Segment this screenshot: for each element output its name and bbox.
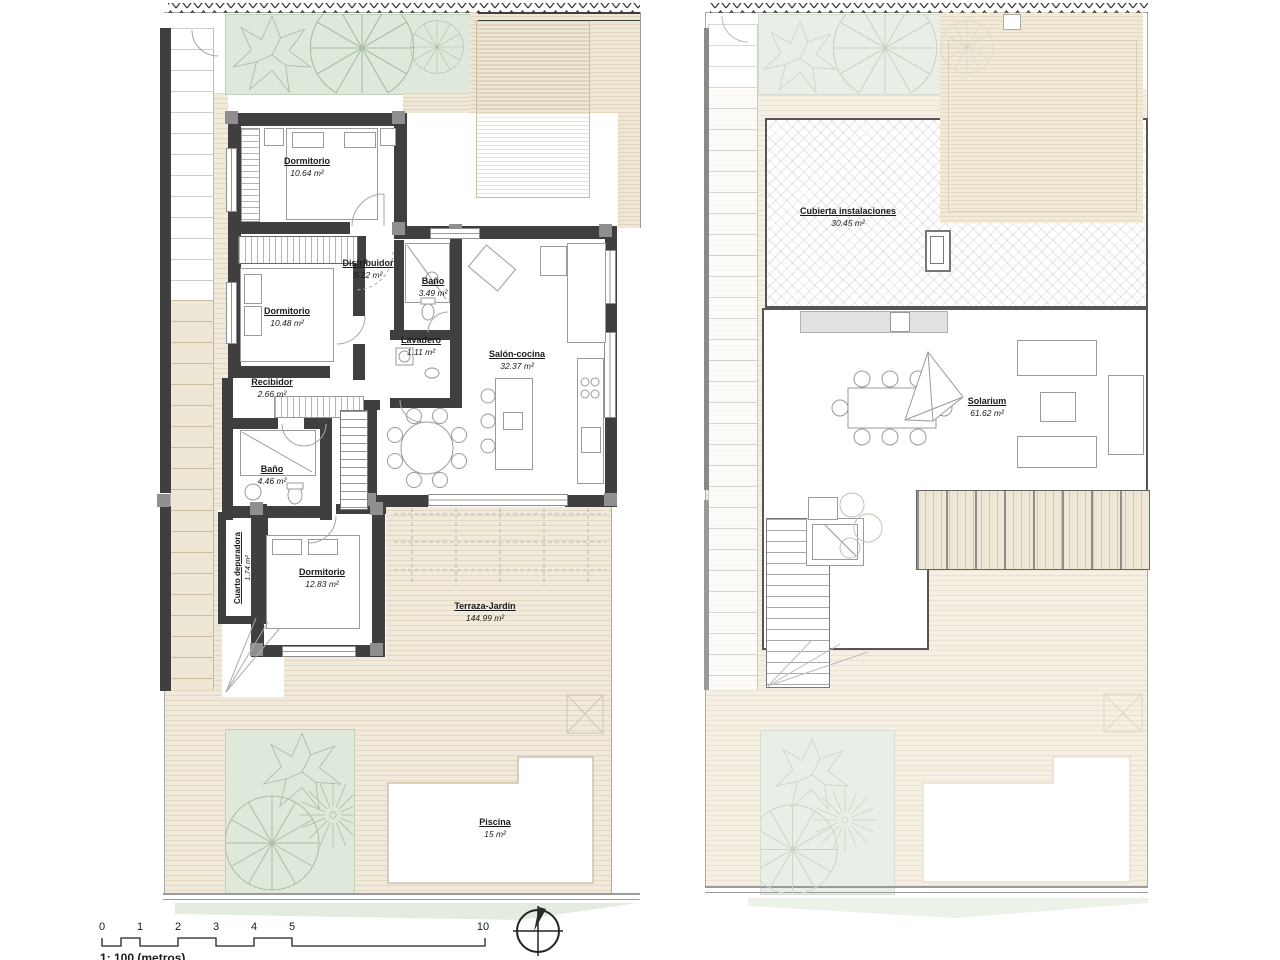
floor-plan-sheet: Dormitorio 10.64 m² Distribuidor 5.22 m²… [0,0,1280,960]
wall-pad [392,222,405,235]
window-sliding-door [430,228,480,239]
room-label-terraza-jardin: Terraza-Jardín 144.99 m² [454,601,515,624]
room-label-cubierta: Cubierta instalaciones 30.45 m² [800,206,896,229]
nightstand [264,128,284,146]
room-area: 10.48 m² [264,318,310,329]
wall-pad [250,502,263,515]
window [282,646,356,657]
room-area: 3.49 m² [419,288,448,299]
room-label-bano1: Baño 3.49 m² [419,276,448,299]
verge-sliver-right [748,898,1148,918]
street-separator [705,886,1148,893]
ottoman [540,246,567,276]
wall-segment [394,226,617,239]
room-area: 1.11 m² [401,347,441,358]
window [604,332,616,418]
sofa [1017,340,1097,376]
scale-tick: 1 [137,921,143,933]
wall-segment [372,504,385,657]
wall-pad [392,111,405,124]
front-garden [225,14,472,95]
window-sliding-door [428,494,568,506]
room-area: 32.37 m² [489,361,545,372]
wall-segment [450,226,462,408]
room-name: Lavadero [401,335,441,347]
built-in-closet [238,236,358,264]
north-arrow-icon [513,906,563,956]
roof-access-marker [1003,14,1021,30]
room-area: 15 m² [479,829,511,840]
scale-tick: 0 [99,921,105,933]
room-area: 2.66 m² [251,389,293,400]
wall-segment [222,506,332,518]
plot-wall-left-upper [160,28,171,493]
room-area: 10.64 m² [284,168,330,179]
room-area: 61.62 m² [968,408,1007,419]
roof-deck-inner [948,40,1137,212]
scale-tick: 3 [213,921,219,933]
back-garden-faded [760,730,895,895]
sofa [1108,375,1144,455]
door-opening [350,222,384,235]
verge-sliver-left [175,903,638,920]
room-label-dormitorio1: Dormitorio 10.64 m² [284,156,330,179]
skylight [925,230,951,272]
kitchen-counter [577,358,604,484]
skylight-inner [930,236,944,264]
pergola-slats [916,490,1150,570]
door-opening [278,418,304,429]
wall-segment [228,222,366,234]
outdoor-kitchen-counter [800,311,948,333]
planter-box [808,497,838,520]
room-name: Dormitorio [299,567,345,579]
room-label-solarium: Solarium 61.62 m² [968,396,1007,419]
room-label-salon-cocina: Salón-cocina 32.37 m² [489,349,545,372]
solarium-room [762,308,1148,504]
side-walkway-lower [170,300,214,690]
room-name: Piscina [479,817,511,829]
room-label-cuarto-depuradora: Cuarto depuradora 1.74 m² [233,532,253,604]
room-name: Distribuidor [343,258,394,270]
room-name: Dormitorio [284,156,330,168]
wall-pad [370,643,383,656]
wall-pad [599,224,612,237]
room-name: Recibidor [251,377,293,389]
room-label-distribuidor: Distribuidor 5.22 m² [343,258,394,281]
room-name: Terraza-Jardín [454,601,515,613]
room-name: Cubierta instalaciones [800,206,896,218]
sofa [567,243,606,343]
pillow [244,306,262,336]
coffee-table [1040,392,1076,422]
scale-bar-line [102,938,485,946]
room-name: Solarium [968,396,1007,408]
pillow [244,274,262,304]
window [226,148,237,212]
room-name: Dormitorio [264,306,310,318]
window [226,282,237,344]
wall-segment [390,398,452,408]
pillow [272,539,302,555]
island-sink [503,412,523,430]
room-area: 144.99 m² [454,613,515,624]
room-label-recibidor: Recibidor 2.66 m² [251,377,293,400]
room-area: 5.22 m² [343,270,394,281]
wardrobe [241,128,260,222]
wall-pad [370,502,383,515]
wall-segment [218,512,226,624]
back-garden [225,729,355,895]
wall-segment [228,113,407,126]
room-name: Salón-cocina [489,349,545,361]
room-area: 1.74 m² [243,532,253,604]
wall-pad [225,111,238,124]
kitchen-sink [581,427,601,453]
room-area: 30.45 m² [800,218,896,229]
outdoor-sink [890,312,910,332]
room-label-bano2: Baño 4.46 m² [258,464,287,487]
scale-tick: 5 [289,921,295,933]
plot-boundary-right-lower [611,505,612,894]
nightstand [380,128,396,146]
pillow [292,132,324,148]
rear-fence-line [478,12,640,21]
scale-tick: 4 [251,921,257,933]
staircase-main [340,410,368,510]
room-label-dormitorio3: Dormitorio 12.83 m² [299,567,345,590]
room-area: 12.83 m² [299,579,345,590]
wall-segment [320,418,332,520]
wall-pad [604,493,617,506]
street-separator [163,893,640,900]
sofa [1017,436,1097,468]
pillow [344,132,376,148]
room-name: Baño [258,464,287,476]
plot-boundary-left-lower [164,690,165,894]
deck-inner-platform [476,20,590,198]
room-label-dormitorio2: Dormitorio 10.48 m² [264,306,310,329]
room-name: Cuarto depuradora [233,532,243,604]
wall-segment [228,236,238,264]
side-walkway-faded [708,24,758,690]
wall-segment [353,344,365,380]
plot-wall-left-lower [704,500,709,690]
room-label-lavadero: Lavadero 1.11 m² [401,335,441,358]
wall-pad [157,494,170,507]
outdoor-shower-tray [812,524,858,560]
wall-segment [394,240,404,334]
plot-wall-left-upper [704,28,709,490]
scale-tick: 10 [477,921,489,933]
scale-caption: 1: 100 (metros) [100,951,185,960]
scale-tick: 2 [175,921,181,933]
wall-segment [222,418,332,429]
pillow [308,539,338,555]
side-walkway-upper [170,28,214,300]
room-name: Baño [419,276,448,288]
room-label-piscina: Piscina 15 m² [479,817,511,840]
wall-pad [250,643,263,656]
room-area: 4.46 m² [258,476,287,487]
plot-wall-left-lower [160,506,171,691]
wall-segment [222,378,233,520]
